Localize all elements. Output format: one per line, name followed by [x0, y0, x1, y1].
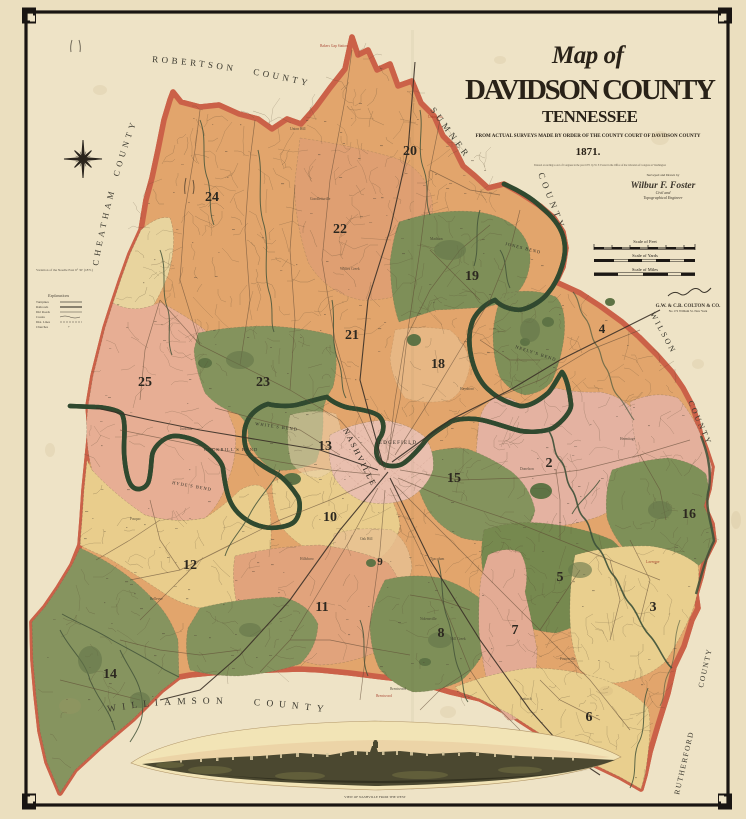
svg-text:Whites Creek: Whites Creek	[340, 267, 360, 271]
svg-text:Brentwood: Brentwood	[390, 687, 406, 691]
svg-text:Scale of Feet: Scale of Feet	[633, 239, 657, 244]
svg-text:6: 6	[586, 710, 593, 725]
svg-text:No 172 William St. New York: No 172 William St. New York	[669, 309, 708, 313]
svg-text:Nolensville: Nolensville	[420, 617, 437, 621]
svg-text:Map of: Map of	[551, 42, 627, 69]
svg-text:Churches: Churches	[36, 325, 49, 329]
svg-text:11: 11	[315, 600, 328, 615]
svg-text:Explanations: Explanations	[47, 293, 70, 298]
svg-text:Donelson: Donelson	[520, 467, 534, 471]
svg-text:COCKRILL'S BEND: COCKRILL'S BEND	[204, 447, 258, 452]
svg-text:VIEW OF NASHVILLE FROM THE WES: VIEW OF NASHVILLE FROM THE WEST	[344, 795, 407, 799]
svg-text:EDGEFIELD: EDGEFIELD	[379, 441, 417, 446]
svg-text:Pasquo: Pasquo	[130, 517, 141, 521]
svg-text:Hillsboro: Hillsboro	[300, 557, 314, 561]
svg-text:16: 16	[682, 507, 696, 522]
svg-text:14: 14	[103, 667, 117, 682]
svg-text:Mill Creek: Mill Creek	[450, 637, 466, 641]
svg-text:Variation of the Needle East 6: Variation of the Needle East 6° 30' (187…	[36, 268, 93, 272]
svg-text:Hermitage: Hermitage	[620, 437, 636, 441]
svg-text:1871.: 1871.	[576, 146, 601, 158]
svg-text:Lavergne: Lavergne	[646, 560, 660, 564]
svg-text:Antioch: Antioch	[520, 697, 532, 701]
svg-text:25: 25	[138, 375, 152, 390]
svg-text:21: 21	[345, 328, 359, 343]
svg-text:2: 2	[546, 456, 553, 471]
svg-text:Bellevue: Bellevue	[150, 597, 163, 601]
svg-text:22: 22	[333, 222, 347, 237]
svg-text:Fosterville: Fosterville	[560, 657, 576, 661]
svg-text:13: 13	[318, 439, 332, 454]
svg-text:15: 15	[447, 471, 461, 486]
svg-text:5: 5	[557, 570, 564, 585]
svg-text:DAVIDSON COUNTY: DAVIDSON COUNTY	[465, 74, 717, 106]
svg-text:Dirt Roads: Dirt Roads	[36, 310, 51, 314]
svg-text:9: 9	[377, 556, 383, 568]
svg-text:Turnpikes: Turnpikes	[36, 300, 50, 304]
svg-text:Topographical Engineer: Topographical Engineer	[643, 195, 683, 200]
svg-text:Goodlettsville: Goodlettsville	[310, 197, 331, 201]
svg-text:TENNESSEE: TENNESSEE	[542, 107, 638, 126]
svg-text:+: +	[68, 325, 70, 329]
svg-text:24: 24	[205, 190, 219, 205]
svg-text:Creeks: Creeks	[36, 315, 46, 319]
svg-text:Oak Hill: Oak Hill	[360, 537, 372, 541]
svg-text:Entered according to Act of Co: Entered according to Act of Congress in …	[534, 164, 667, 167]
svg-text:12: 12	[183, 558, 197, 573]
svg-text:Railroads: Railroads	[36, 305, 49, 309]
svg-text:Bakers Gap Station: Bakers Gap Station	[320, 44, 348, 48]
svg-text:Scale of Miles: Scale of Miles	[632, 267, 658, 272]
svg-text:Jordonia: Jordonia	[180, 427, 193, 431]
svg-text:18: 18	[431, 357, 445, 372]
svg-text:Surveyed and Drawn by: Surveyed and Drawn by	[647, 173, 680, 177]
svg-text:19: 19	[465, 269, 479, 284]
svg-text:Union Hill: Union Hill	[290, 127, 305, 131]
svg-text:Madison: Madison	[430, 237, 443, 241]
svg-text:20: 20	[403, 144, 417, 159]
svg-text:8: 8	[438, 626, 445, 641]
svg-text:4: 4	[599, 321, 606, 336]
svg-text:23: 23	[256, 375, 270, 390]
svg-text:Brentwood: Brentwood	[376, 694, 392, 698]
svg-text:Dist. Lines: Dist. Lines	[36, 320, 51, 324]
svg-text:3: 3	[650, 600, 657, 615]
svg-text:10: 10	[323, 510, 337, 525]
svg-text:Scale of Yards: Scale of Yards	[632, 253, 658, 258]
svg-text:Tusculum: Tusculum	[430, 557, 444, 561]
svg-text:7: 7	[512, 623, 519, 638]
